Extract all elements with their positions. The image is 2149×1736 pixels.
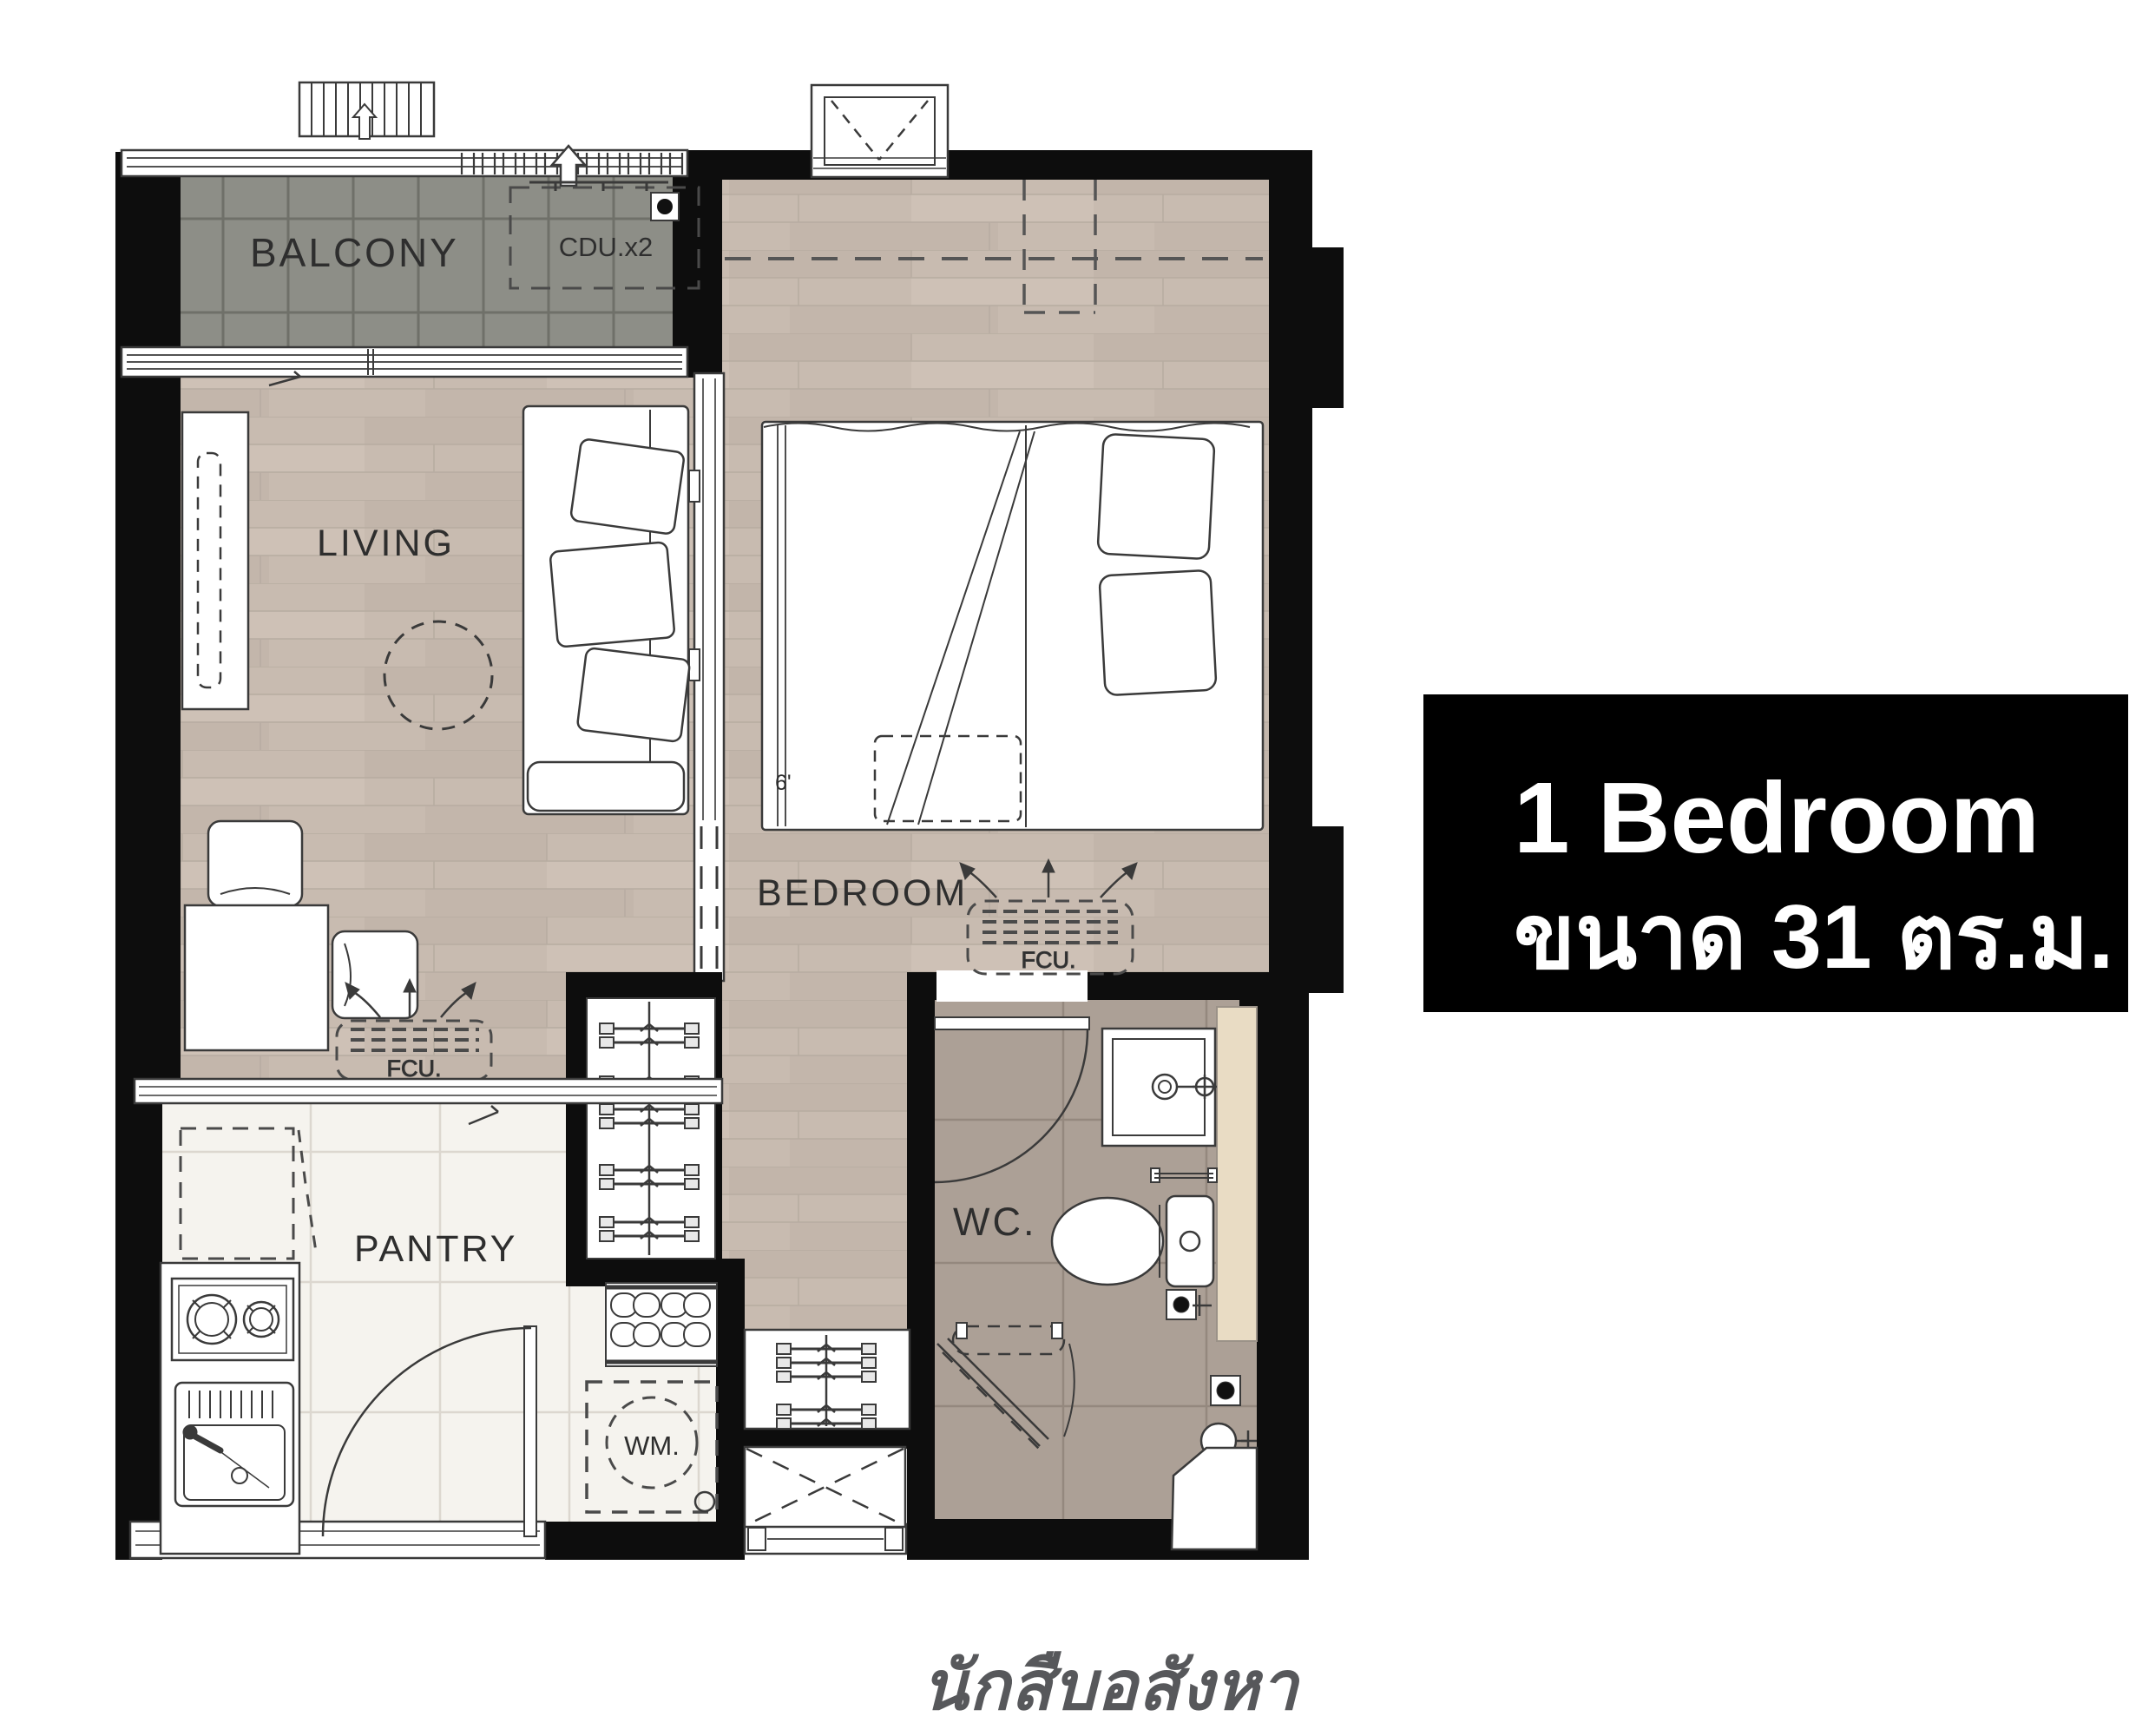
wc-label: WC. [953,1200,1036,1244]
unit-size-subtitle: ขนาด 31 ตร.ม. [1514,892,2128,983]
dining-table [185,905,328,1050]
cdu-label: CDU.x2 [559,232,654,262]
junction-box-icon [651,193,679,220]
living-label: LIVING [317,523,455,564]
toilet [1052,1196,1213,1286]
wardrobe-corridor [745,1330,910,1429]
fcu-bedroom-label: FCU. [1022,947,1076,973]
floor-drain-icon [1211,1376,1240,1405]
shaft [745,1447,905,1527]
wc-sink [1102,1029,1217,1146]
tv-console [182,412,248,709]
page: CDU.x2 FCU. [0,0,2149,1736]
balcony-label: BALCONY [250,230,459,275]
vanity-counter [1217,1007,1257,1341]
wm-label: WM. [624,1430,680,1461]
trellis [299,82,434,139]
pantry-label: PANTRY [354,1228,517,1270]
pillow [1099,570,1216,696]
fcu-living-label: FCU. [387,1055,442,1082]
pillow [1097,434,1214,560]
stove [172,1279,293,1360]
bedroom-label: BEDROOM [757,872,968,914]
wc-door-opening [936,970,1088,1002]
shoe-rack [606,1283,717,1366]
watermark-credit: นักสืบอสังหา [922,1632,1298,1736]
corridor-window [745,1524,906,1554]
wardrobe-bedroom [566,972,722,1286]
unit-info-box: 1 Bedroom ขนาด 31 ตร.ม. [1423,694,2128,1012]
wood-floor-corridor [722,1081,907,1341]
bed-size-label: 6' [775,771,792,795]
kitchen-sink [175,1383,293,1506]
sofa [523,406,690,814]
ac-ledge-box [812,85,948,177]
unit-type-title: 1 Bedroom [1514,767,2128,868]
partition-living-bedroom [689,373,724,981]
bed: 6' [762,422,1263,830]
